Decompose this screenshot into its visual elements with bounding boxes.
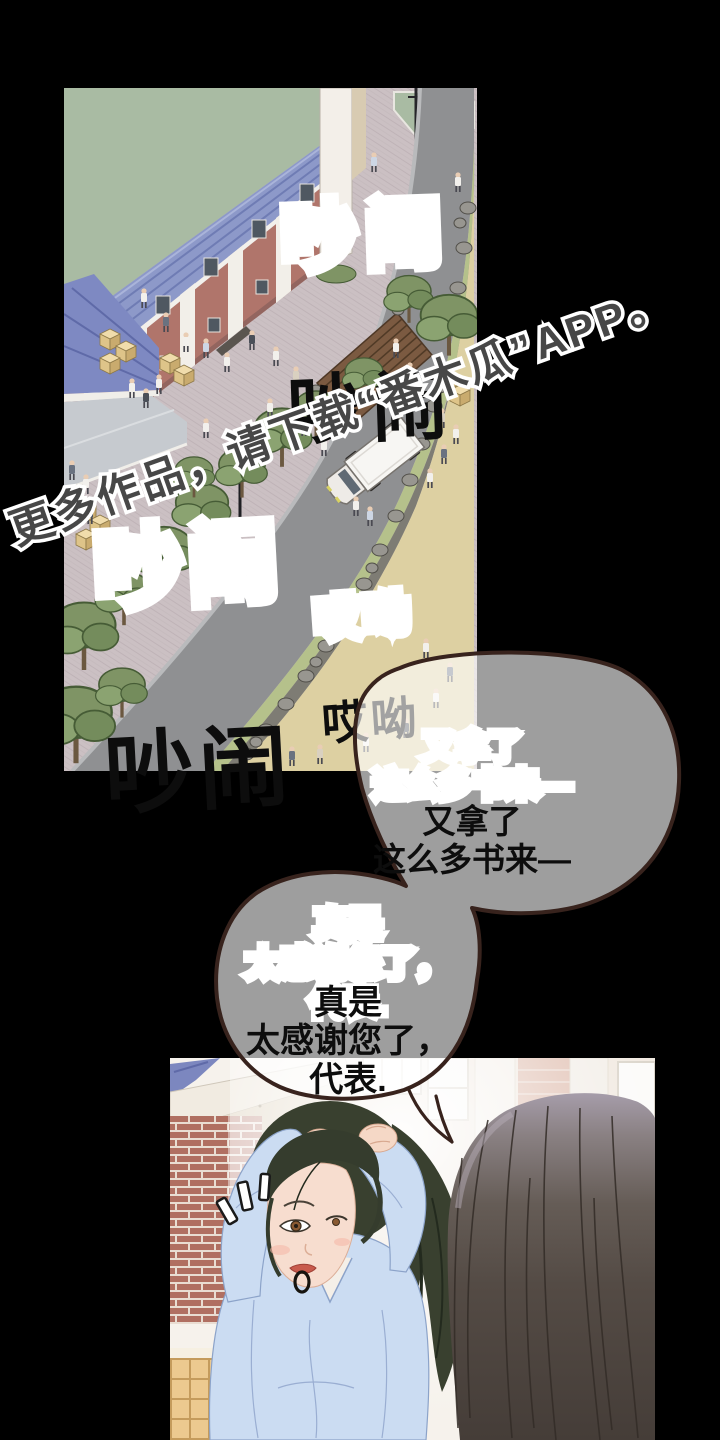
sfx-noise-top-outline: 吵闹 <box>280 191 451 283</box>
sfx-noise-bottom-outline: 吵闹 <box>91 511 284 623</box>
comic-page: 吵闹 吵闹 吵闹 吵闹 哎呦 哎呦 更多作品，请下载“番木瓜”APP。 更多作品… <box>0 0 720 1440</box>
speech-bubble-2-text: 真是 太感谢您了， 代表. 真是 太感谢您了， 代表. <box>228 906 468 1139</box>
speech-bubble-1-text: 又拿了 这么多书来— 又拿了 这么多书来— <box>352 728 592 916</box>
